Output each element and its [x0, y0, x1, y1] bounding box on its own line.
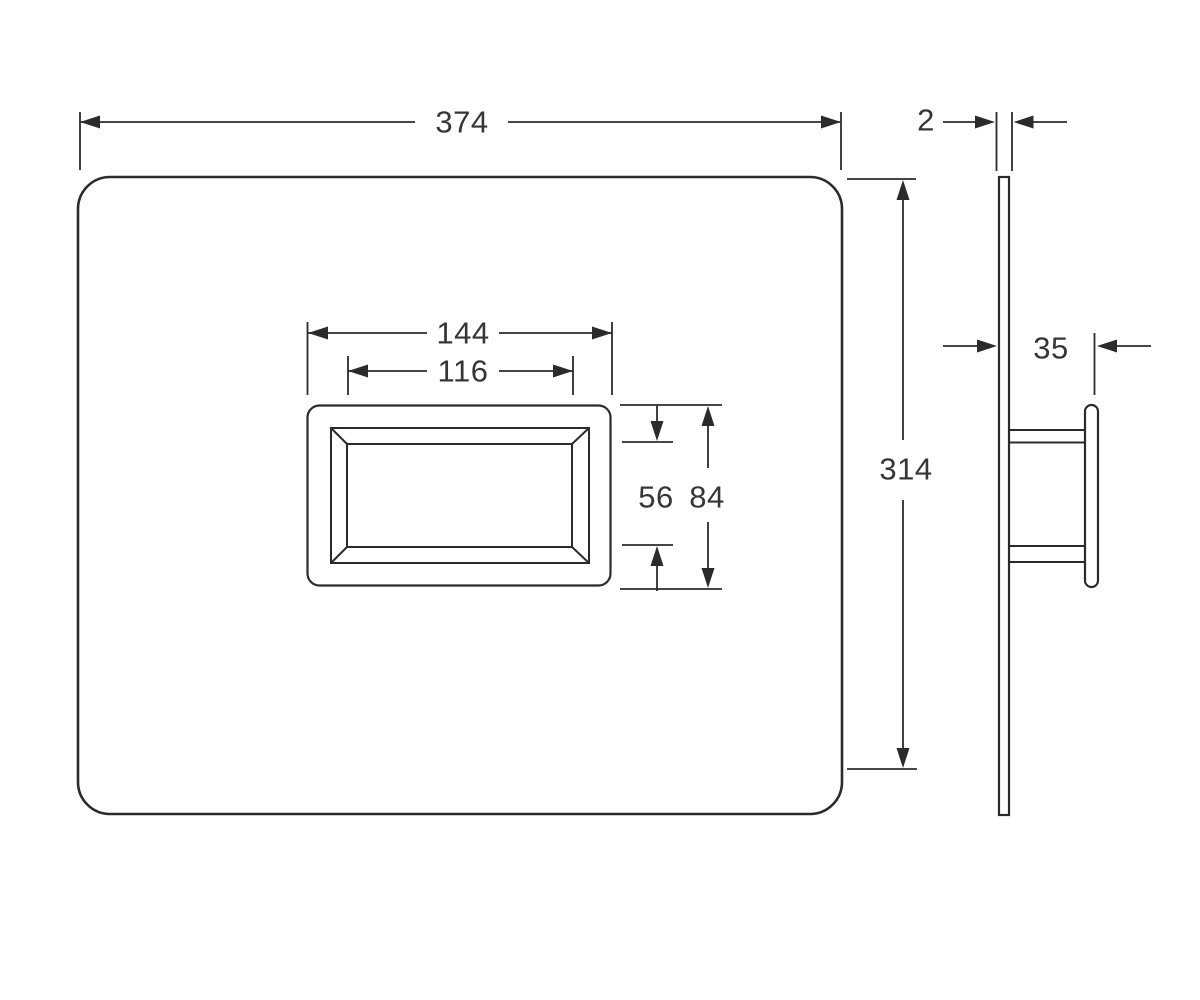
dim-plate-width-label: 374 — [435, 107, 488, 138]
button-face-outline — [347, 444, 572, 547]
dim-plate-thickness-label: 2 — [917, 105, 935, 136]
side-plate-outline — [999, 177, 1009, 815]
dim-144-arrow-right-icon — [592, 327, 612, 340]
dim-plate-height-label: 314 — [879, 454, 932, 485]
dim-374-arrow-left-icon — [80, 116, 100, 129]
bevel-diagonal-top-left — [331, 428, 347, 444]
drawing-geometry — [0, 0, 1200, 1000]
button-bevel-outline — [331, 428, 589, 563]
technical-drawing-canvas: 374 2 314 144 116 56 84 35 — [0, 0, 1200, 1000]
dim-plate-thickness — [943, 112, 1067, 171]
dim-button-outer-height-label: 84 — [689, 482, 724, 513]
dim-button-inner-width-label: 116 — [438, 356, 489, 387]
dim-84-arrow-up-icon — [702, 406, 715, 426]
dim-144-arrow-left-icon — [308, 327, 328, 340]
dim-314-arrow-down-icon — [897, 748, 910, 768]
dim-2-arrow-left-icon — [975, 116, 995, 129]
mount-frame-outline — [1085, 405, 1098, 587]
dim-56-arrow-down-icon — [651, 421, 664, 441]
dim-35-arrow-left-icon — [1097, 340, 1117, 353]
bevel-diagonal-bottom-left — [331, 547, 347, 563]
side-view — [999, 177, 1098, 815]
dim-button-inner-height-label: 56 — [638, 482, 673, 513]
bevel-diagonal-top-right — [572, 428, 589, 444]
front-view — [78, 177, 842, 814]
dim-314-arrow-up-icon — [897, 180, 910, 200]
dim-button-outer-width-label: 144 — [436, 318, 489, 349]
dim-84-arrow-down-icon — [702, 568, 715, 588]
dim-56-arrow-up-icon — [651, 546, 664, 566]
dim-35-arrow-right-icon — [977, 340, 997, 353]
front-plate-outline — [78, 177, 842, 814]
dim-374-arrow-right-icon — [821, 116, 841, 129]
button-outer-outline — [308, 406, 611, 586]
bevel-diagonal-bottom-right — [572, 547, 589, 563]
dim-mount-depth-label: 35 — [1033, 333, 1068, 364]
dim-116-arrow-left-icon — [348, 365, 368, 378]
dim-2-arrow-right-icon — [1014, 116, 1034, 129]
dim-116-arrow-right-icon — [553, 365, 573, 378]
